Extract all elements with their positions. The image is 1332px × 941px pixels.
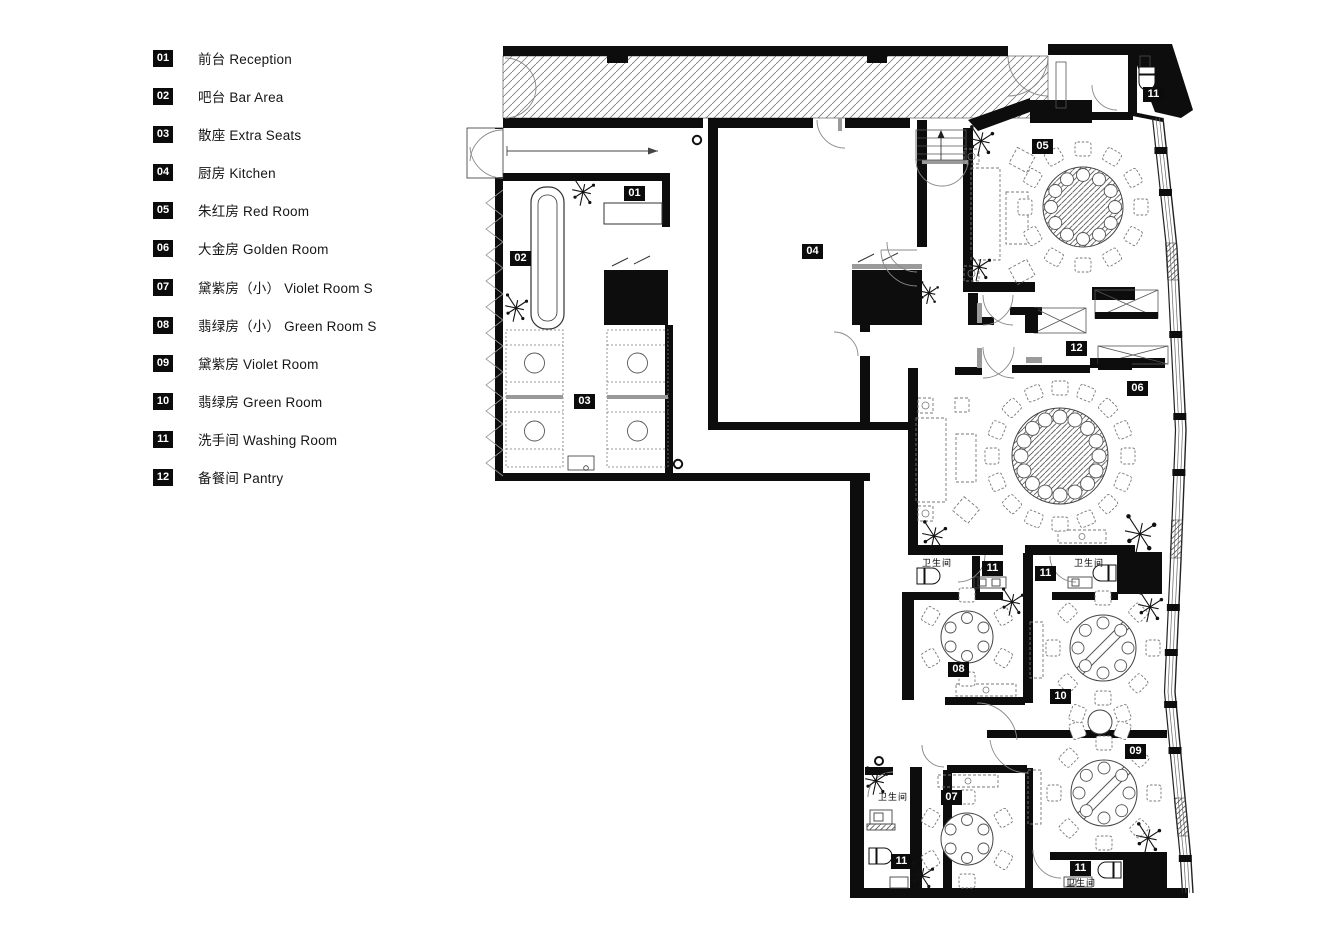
chair [1058,747,1079,768]
chair [1046,640,1060,656]
floor-plan-drawing [0,0,1332,941]
chair [1095,691,1111,705]
chair [1113,472,1132,492]
chair [1001,397,1022,418]
room-badge-green-room: 10 [1050,689,1071,704]
chair [1075,258,1091,272]
curtain-wall [1153,118,1194,893]
chair [1096,736,1112,750]
chair [921,808,941,829]
chair [988,420,1007,440]
generated-furniture [486,118,1193,893]
chair [1057,602,1078,623]
chair [1076,509,1096,528]
chair [1113,420,1132,440]
chair [1123,226,1143,247]
chair [1052,381,1068,395]
plant-icon [505,293,528,321]
chair [921,850,941,871]
dining-table-room-06 [985,381,1135,531]
booth-column [607,330,668,467]
chair [1113,704,1132,724]
chair [959,588,975,602]
chair [1068,704,1087,724]
dining-table-room-05 [1018,142,1148,272]
chair [1095,591,1111,605]
chair [959,874,975,888]
chair [1097,493,1118,514]
room-badge-washroom-ne: 11 [1143,87,1164,102]
chair [1075,142,1091,156]
washroom-label: 卫生间 [1066,876,1096,889]
chair [1023,168,1043,189]
room-badge-washroom-sw: 11 [891,854,912,869]
room-badge-pantry: 12 [1066,341,1087,356]
chair [993,648,1013,669]
room-badge-kitchen: 04 [802,244,823,259]
washroom-label: 卫生间 [1074,556,1104,569]
chair [1018,199,1032,215]
dining-table-room-10 [1046,591,1160,705]
room-badge-bar-area: 02 [510,251,531,266]
chair [1096,836,1112,850]
chair [1123,168,1143,189]
chair [993,808,1013,829]
room-badge-violet-room: 09 [1125,744,1146,759]
chair [1058,818,1079,839]
hatch-entry-corridor [503,56,1048,118]
chair [1121,448,1135,464]
room-badge-red-room: 05 [1032,139,1053,154]
chair [1052,517,1068,531]
chair [1044,247,1065,267]
room-badge-washroom-ml: 11 [982,561,1003,576]
lounge-room-05 [964,147,1035,284]
lounge-room-06 [916,398,979,523]
room-badge-violet-room-s: 07 [941,790,962,805]
chair [985,448,999,464]
pantry-shelves [1034,290,1168,364]
chair [1102,147,1123,167]
booth-column [506,330,563,467]
room-badge-reception: 01 [624,186,645,201]
chair [1047,785,1061,801]
chair [1134,199,1148,215]
dining-table-room-07 [921,790,1014,888]
chair [921,648,941,669]
room-badge-green-room-s: 08 [948,662,969,677]
dimension-line [507,146,658,156]
chair [1076,384,1096,403]
chair [993,850,1013,871]
chair [988,472,1007,492]
chair [1102,247,1123,267]
room-badge-golden-room: 06 [1127,381,1148,396]
chair [921,606,941,627]
chair [1097,397,1118,418]
washroom-label: 卫生间 [878,790,908,803]
room-badge-extra-seats: 03 [574,394,595,409]
room-badge-washroom-se: 11 [1070,861,1091,876]
chair [1024,509,1044,528]
chair [1128,602,1149,623]
reception-desk [604,203,662,224]
plant-icon [920,281,939,304]
chair [1001,493,1022,514]
plant-icon [572,177,595,205]
washroom-label: 卫生间 [922,556,952,569]
bar-counter [531,187,564,329]
chair [1128,673,1149,694]
floor-plan-page: 01前台 Reception 02吧台 Bar Area 03散座 Extra … [0,0,1332,941]
chair [1024,384,1044,403]
chair [1146,640,1160,656]
room-badge-washroom-mr: 11 [1035,566,1056,581]
chair [1023,226,1043,247]
chair [1147,785,1161,801]
